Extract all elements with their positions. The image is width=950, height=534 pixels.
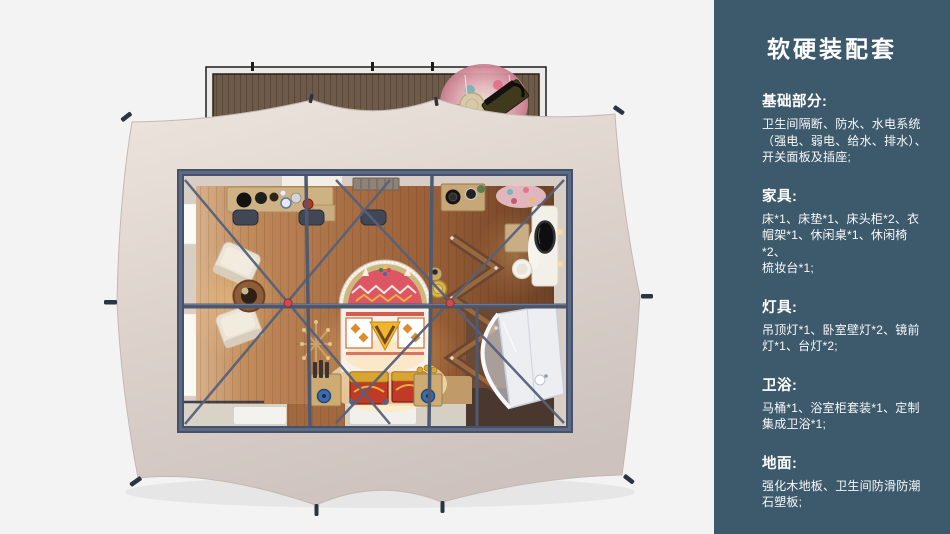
section-flooring: 地面: 强化木地板、卫生间防滑防潮 石塑板; xyxy=(762,452,930,511)
section-bathroom: 卫浴: 马桶*1、浴室柜套装*1、定制 集成卫浴*1; xyxy=(762,374,930,433)
section-furniture-body: 床*1、床垫*1、床头柜*2、衣 帽架*1、休闲桌*1、休闲椅*2、 梳妆台*1… xyxy=(762,211,930,277)
section-furniture-heading: 家具: xyxy=(762,185,930,206)
page-title: 软硬装配套 xyxy=(714,30,950,64)
section-bathroom-body: 马桶*1、浴室柜套装*1、定制 集成卫浴*1; xyxy=(762,400,930,433)
wall-lamp xyxy=(557,261,563,267)
section-furniture: 家具: 床*1、床垫*1、床头柜*2、衣 帽架*1、休闲桌*1、休闲椅*2、 梳… xyxy=(762,185,930,277)
dressing-table xyxy=(528,206,558,286)
frame-joint xyxy=(284,299,292,307)
stove-counter xyxy=(441,184,485,211)
frame-joint xyxy=(446,299,454,307)
dressing-rug xyxy=(496,184,546,208)
section-lighting-heading: 灯具: xyxy=(762,296,930,317)
bed xyxy=(339,260,431,372)
section-bathroom-heading: 卫浴: xyxy=(762,374,930,395)
floorplan-render xyxy=(0,0,714,534)
section-basics-heading: 基础部分: xyxy=(762,90,930,111)
room xyxy=(180,172,570,430)
section-lighting-body: 吊顶灯*1、卧室壁灯*2、镜前 灯*1、台灯*2; xyxy=(762,322,930,355)
bathroom-unit xyxy=(483,304,564,408)
spec-sections: 基础部分: 卫生间隔断、防水、水电系统 （强电、弱电、给水、排水）、 开关面板及… xyxy=(714,64,950,511)
section-flooring-body: 强化木地板、卫生间防滑防潮 石塑板; xyxy=(762,478,930,511)
wall-lamp xyxy=(557,229,563,235)
sidebar: 软硬装配套 基础部分: 卫生间隔断、防水、水电系统 （强电、弱电、给水、排水）、… xyxy=(714,0,950,534)
ceiling-vent xyxy=(353,178,399,190)
section-lighting: 灯具: 吊顶灯*1、卧室壁灯*2、镜前 灯*1、台灯*2; xyxy=(762,296,930,355)
section-flooring-heading: 地面: xyxy=(762,452,930,473)
page: 软硬装配套 基础部分: 卫生间隔断、防水、水电系统 （强电、弱电、给水、排水）、… xyxy=(0,0,950,534)
section-basics: 基础部分: 卫生间隔断、防水、水电系统 （强电、弱电、给水、排水）、 开关面板及… xyxy=(762,90,930,166)
section-basics-body: 卫生间隔断、防水、水电系统 （强电、弱电、给水、排水）、 开关面板及插座; xyxy=(762,116,930,166)
floor-mat xyxy=(234,407,286,424)
